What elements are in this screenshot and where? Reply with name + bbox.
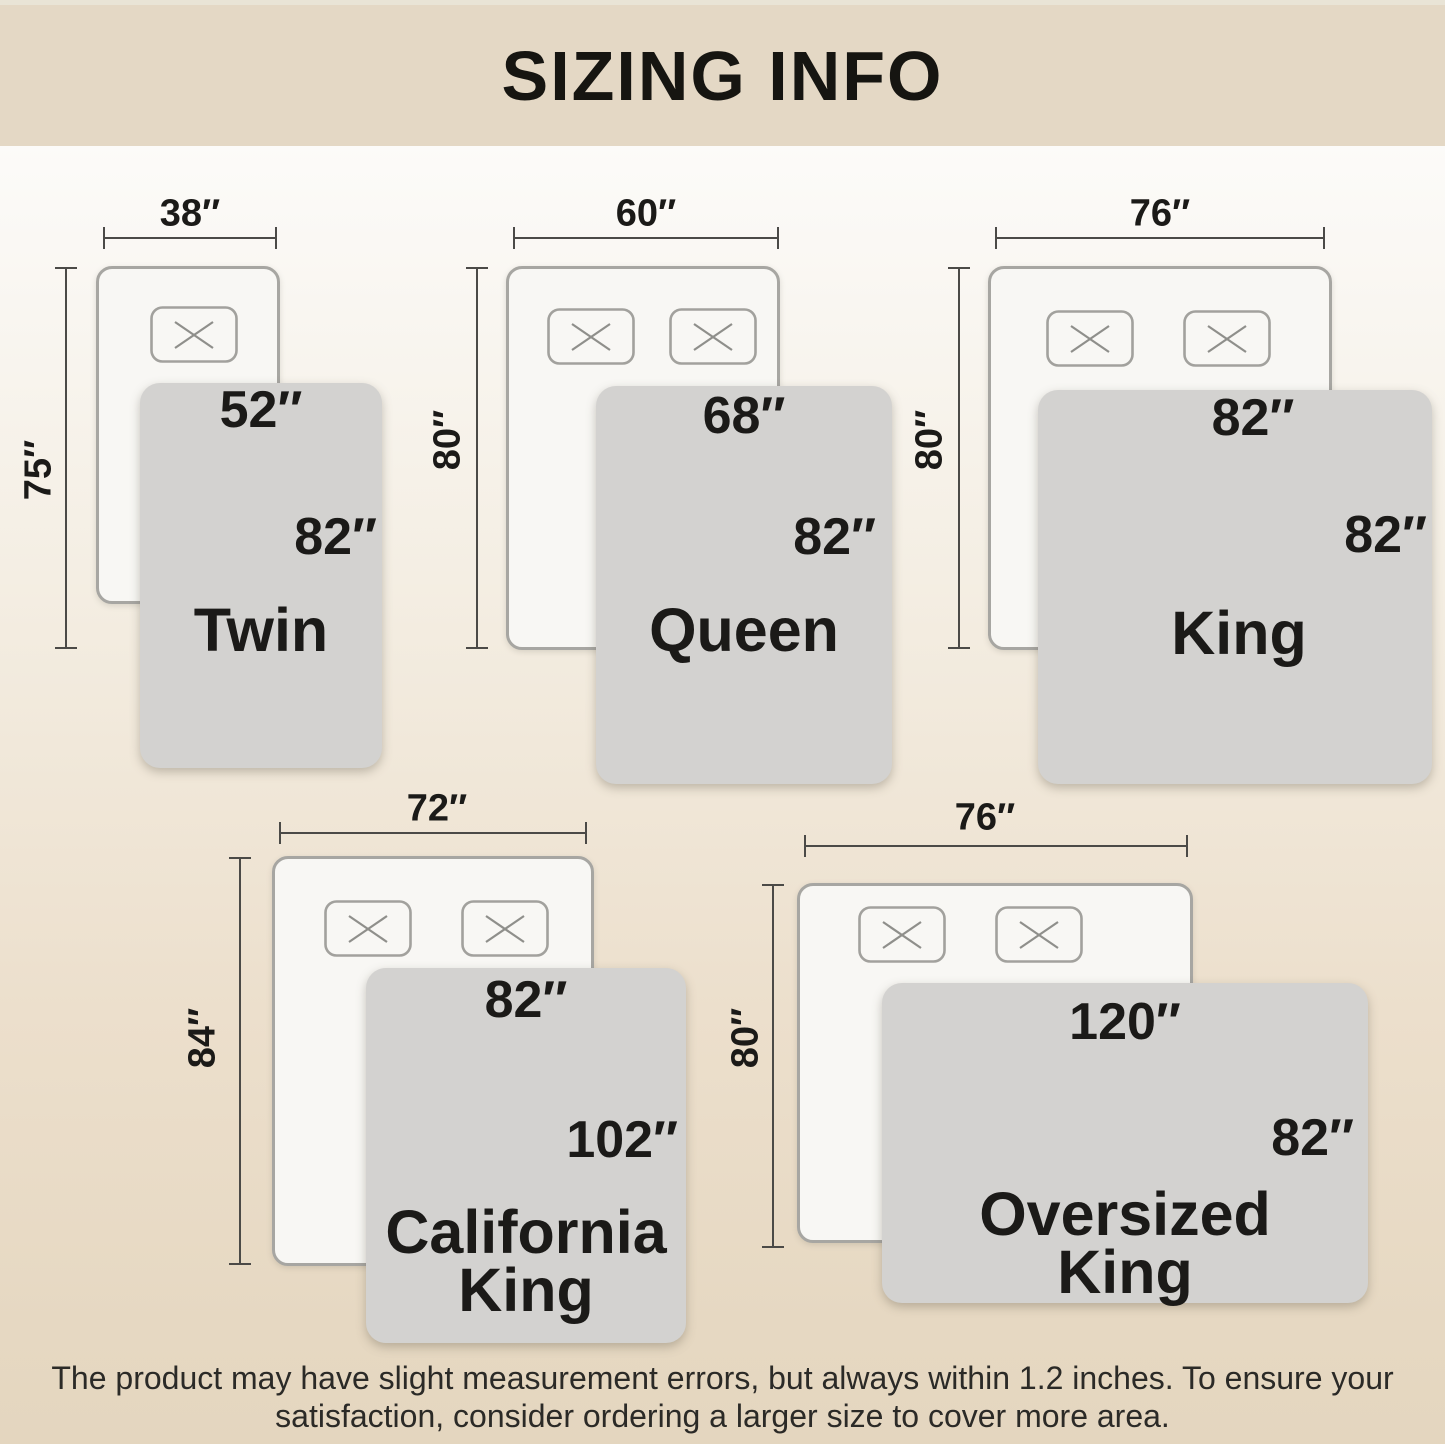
oversized-king-blanket-length-label: 82″ — [1271, 1108, 1354, 1168]
sizing-info-graphic: SIZING INFO 38″ 75″ 52″ 82″ Twin 60″ 80″ — [0, 0, 1445, 1444]
oversized-king-diagram: 76″ 80″ 120″ 82″ Oversized King — [0, 0, 1445, 1444]
disclaimer-line1: The product may have slight measurement … — [0, 1359, 1445, 1397]
oversized-king-length-dimension-line — [772, 885, 774, 1247]
oversized-king-pillow-x-icon — [858, 906, 946, 963]
oversized-king-blanket-width-label: 120″ — [1069, 992, 1181, 1052]
disclaimer: The product may have slight measurement … — [0, 1359, 1445, 1435]
oversized-king-label-line2: King — [979, 1243, 1271, 1301]
oversized-king-label: Oversized King — [979, 1185, 1271, 1301]
oversized-king-pillow-x-icon — [995, 906, 1083, 963]
oversized-king-width-dimension-line — [805, 845, 1187, 847]
oversized-king-mattress-length-label: 80″ — [725, 1008, 768, 1068]
oversized-king-mattress-width-label: 76″ — [955, 797, 1015, 840]
oversized-king-label-line1: Oversized — [979, 1185, 1271, 1243]
disclaimer-line2: satisfaction, consider ordering a larger… — [0, 1397, 1445, 1435]
